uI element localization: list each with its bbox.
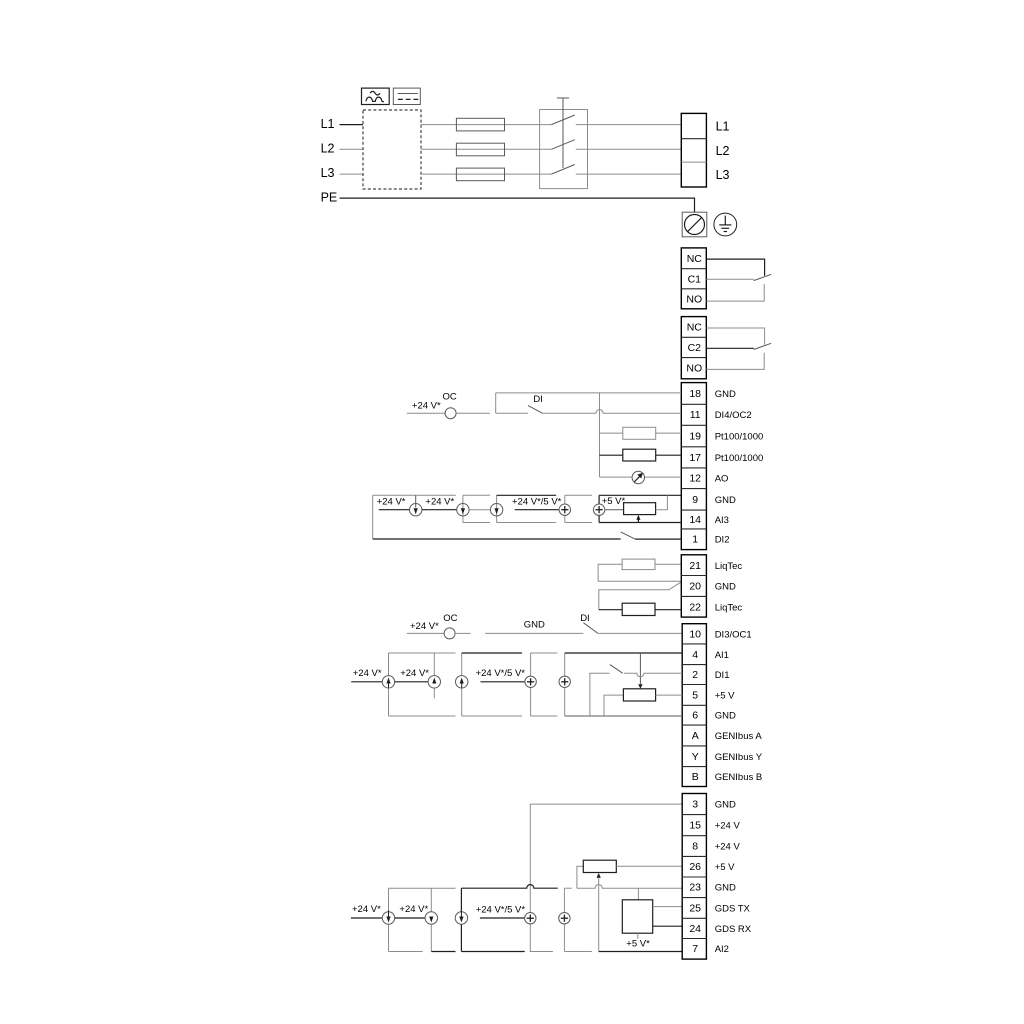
svg-text:Pt100/1000: Pt100/1000 [715,453,764,464]
svg-text:DI1: DI1 [715,670,730,681]
svg-text:2: 2 [692,669,698,681]
svg-text:+24 V*: +24 V* [400,668,429,679]
svg-text:12: 12 [689,473,701,485]
svg-text:+5 V*: +5 V* [602,496,626,507]
svg-text:+24 V*: +24 V* [353,668,382,679]
svg-text:+24 V*: +24 V* [410,621,439,632]
svg-text:GND: GND [715,495,736,506]
svg-text:GND: GND [715,883,736,894]
svg-text:C2: C2 [688,342,702,354]
svg-text:+24 V*/5 V*: +24 V*/5 V* [512,496,562,507]
svg-text:L3: L3 [321,166,335,180]
svg-text:L2: L2 [716,144,730,158]
svg-text:GENIbus B: GENIbus B [715,772,763,783]
svg-text:GENIbus Y: GENIbus Y [715,752,763,763]
svg-text:10: 10 [689,628,701,640]
svg-text:23: 23 [689,882,701,894]
svg-text:22: 22 [689,601,701,613]
svg-text:6: 6 [692,710,698,722]
svg-text:C1: C1 [688,274,702,286]
svg-text:L1: L1 [321,117,335,131]
svg-text:GENIbus A: GENIbus A [715,731,763,742]
svg-text:L3: L3 [716,168,730,182]
svg-text:L1: L1 [716,120,730,134]
svg-text:DI3/OC1: DI3/OC1 [715,629,752,640]
svg-text:AI2: AI2 [715,944,729,955]
svg-text:4: 4 [692,649,698,661]
svg-text:GDS TX: GDS TX [715,903,751,914]
svg-text:9: 9 [692,494,698,506]
svg-text:26: 26 [689,861,701,873]
svg-text:+24 V*: +24 V* [377,497,406,508]
svg-text:B: B [692,771,699,783]
svg-text:+5 V: +5 V [715,690,735,701]
svg-text:NC: NC [687,253,703,265]
svg-text:NO: NO [686,294,702,306]
svg-text:21: 21 [689,560,701,572]
svg-text:DI: DI [580,613,590,624]
svg-text:+24 V*/5 V*: +24 V*/5 V* [476,905,526,916]
svg-text:+24 V*: +24 V* [399,904,428,915]
svg-text:+5 V: +5 V [715,862,735,873]
svg-text:GND: GND [715,711,736,722]
svg-text:14: 14 [689,514,701,526]
svg-text:15: 15 [689,820,701,832]
svg-text:+24 V: +24 V [715,842,741,853]
svg-text:Pt100/1000: Pt100/1000 [715,432,764,443]
svg-text:L2: L2 [321,141,335,155]
svg-text:3: 3 [692,799,698,811]
svg-text:+24 V*: +24 V* [412,400,441,411]
svg-text:+24 V*/5 V*: +24 V*/5 V* [476,668,526,679]
svg-text:20: 20 [689,581,701,593]
svg-text:DI4/OC2: DI4/OC2 [715,410,752,421]
svg-text:+5 V*: +5 V* [626,938,650,949]
svg-text:GDS RX: GDS RX [715,924,752,935]
svg-text:18: 18 [689,388,701,400]
svg-text:7: 7 [692,943,698,955]
svg-text:AO: AO [715,474,729,485]
svg-text:OC: OC [443,613,457,624]
svg-text:DI2: DI2 [715,535,730,546]
svg-text:+24 V: +24 V [715,821,741,832]
svg-text:GND: GND [715,389,736,400]
svg-text:NC: NC [687,322,703,334]
svg-text:19: 19 [689,431,701,443]
svg-text:GND: GND [524,620,545,631]
svg-text:AI1: AI1 [715,650,729,661]
svg-text:NO: NO [686,363,702,375]
svg-text:Y: Y [692,751,699,763]
svg-text:1: 1 [692,534,698,546]
svg-text:LiqTec: LiqTec [715,602,743,613]
svg-text:AI3: AI3 [715,515,729,526]
svg-text:DI: DI [533,394,543,405]
svg-text:+24 V*: +24 V* [425,497,454,508]
svg-text:LiqTec: LiqTec [715,561,743,572]
svg-text:17: 17 [689,452,701,464]
svg-text:GND: GND [715,800,736,811]
svg-text:GND: GND [715,582,736,593]
svg-text:24: 24 [689,923,701,935]
svg-text:11: 11 [690,409,701,421]
svg-text:8: 8 [692,841,698,853]
svg-text:+24 V*: +24 V* [352,904,381,915]
svg-text:5: 5 [692,689,698,701]
svg-text:A: A [692,730,699,742]
svg-text:25: 25 [689,902,701,914]
svg-text:OC: OC [443,391,457,402]
svg-text:PE: PE [321,191,338,205]
